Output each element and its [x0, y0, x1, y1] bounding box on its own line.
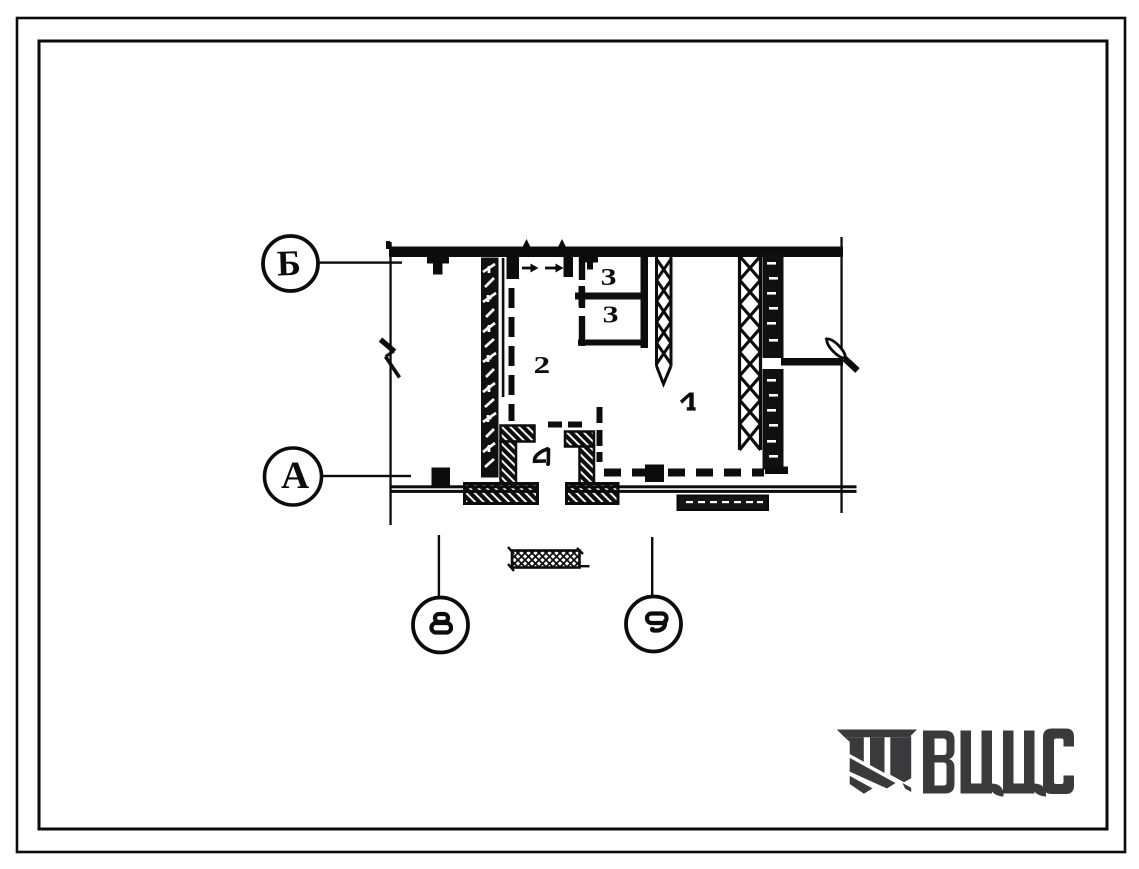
svg-text:З: З — [603, 301, 619, 328]
svg-text:З: З — [601, 263, 617, 290]
svg-text:2: 2 — [534, 352, 551, 378]
svg-text:Б: Б — [276, 243, 301, 284]
svg-text:А: А — [281, 454, 309, 497]
